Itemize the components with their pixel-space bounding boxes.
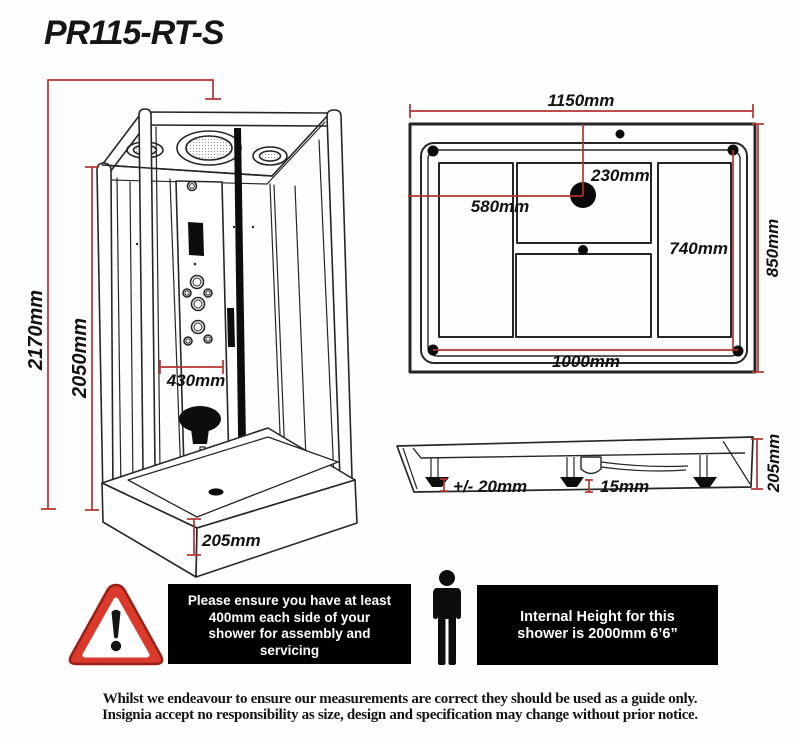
rain-shower-head	[177, 131, 241, 165]
assembly-notice-line: servicing	[168, 643, 411, 660]
shower-tray-3d	[102, 428, 357, 577]
assembly-notice-line: 400mm each side of your	[168, 610, 411, 627]
assembly-notice-line: shower for assembly and	[168, 626, 411, 643]
dim-drain-left: 580mm	[471, 197, 530, 216]
inlet-dot	[616, 130, 625, 139]
assembly-notice-line: Please ensure you have at least	[168, 593, 411, 610]
dim-glass-height: 2050mm	[69, 318, 91, 399]
tray-drain	[209, 488, 224, 495]
dim-tray-height-front: 205mm	[201, 531, 261, 550]
dim-tray-height-side: 205mm	[764, 434, 783, 494]
dim-clearance: 15mm	[600, 477, 649, 496]
assembly-notice: Please ensure you have at least 400mm ea…	[168, 584, 411, 664]
dim-plan-width: 1150mm	[548, 91, 615, 110]
tray-side-view-drawing	[397, 437, 753, 492]
person-height-icon	[427, 569, 467, 669]
dim-drain-top: 230mm	[590, 166, 650, 185]
warning-triangle-icon	[64, 578, 168, 672]
internal-height-line: Internal Height for this	[477, 609, 718, 626]
dim-base-depth: 740mm	[669, 239, 728, 258]
dim-total-height: 2170mm	[25, 290, 47, 371]
internal-height-notice: Internal Height for this shower is 2000m…	[477, 585, 718, 665]
disclaimer-line-1: Whilst we endeavour to ensure our measur…	[0, 692, 800, 708]
dim-feet-adjustment: +/- 20mm	[453, 477, 527, 496]
riser-dot	[733, 346, 744, 357]
dim-base-width: 1000mm	[552, 352, 620, 371]
riser-dot	[428, 146, 439, 157]
plan-view-dimensions	[408, 104, 764, 372]
dim-panel-width: 430mm	[166, 371, 226, 390]
shower-cabin-drawing	[97, 109, 357, 577]
diagram-page: PR115-RT-S	[0, 0, 800, 738]
door-handle	[227, 308, 235, 347]
internal-height-line: shower is 2000mm 6’6”	[477, 626, 718, 643]
dim-plan-depth: 850mm	[763, 219, 782, 278]
disclaimer-line-2: Insignia accept no responsibility as siz…	[0, 708, 800, 724]
disclaimer: Whilst we endeavour to ensure our measur…	[0, 692, 800, 723]
pipe-dot	[578, 245, 588, 255]
